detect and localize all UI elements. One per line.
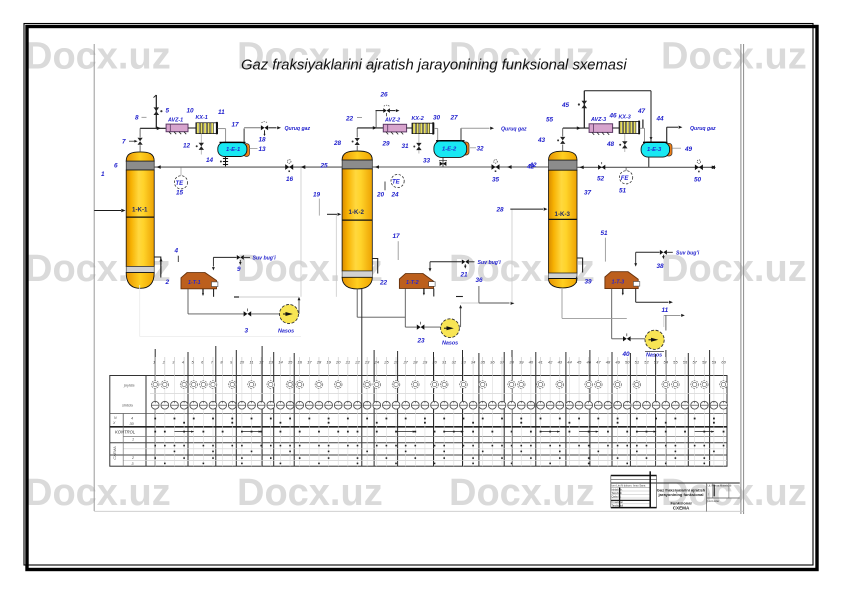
svg-text:42: 42 bbox=[548, 360, 553, 365]
svg-text:32: 32 bbox=[452, 360, 457, 365]
svg-text:51: 51 bbox=[601, 230, 609, 237]
svg-text:X: X bbox=[112, 421, 116, 425]
svg-text:6: 6 bbox=[114, 163, 118, 170]
svg-text:15: 15 bbox=[288, 360, 293, 365]
svg-text:16: 16 bbox=[297, 360, 302, 365]
svg-text:Qabul q.: Qabul q. bbox=[612, 495, 622, 499]
svg-text:TE: TE bbox=[176, 181, 185, 187]
svg-text:35: 35 bbox=[492, 177, 500, 184]
svg-text:50: 50 bbox=[694, 177, 702, 184]
svg-text:38: 38 bbox=[657, 263, 665, 270]
svg-text:55: 55 bbox=[546, 117, 554, 124]
svg-text:54: 54 bbox=[664, 360, 669, 365]
svg-text:52: 52 bbox=[644, 360, 649, 365]
svg-text:38: 38 bbox=[509, 360, 514, 365]
svg-text:28: 28 bbox=[496, 207, 505, 214]
svg-text:40: 40 bbox=[622, 351, 631, 358]
svg-text:2: 2 bbox=[131, 456, 134, 460]
svg-text:Docx.uz: Docx.uz bbox=[25, 472, 171, 514]
svg-text:59: 59 bbox=[712, 360, 717, 365]
svg-text:KX-1: KX-1 bbox=[196, 115, 208, 121]
svg-text:Quruq gaz: Quruq gaz bbox=[501, 127, 527, 133]
svg-text:AVZ-3: AVZ-3 bbox=[590, 117, 606, 123]
svg-text:17: 17 bbox=[307, 360, 312, 365]
svg-text:14: 14 bbox=[206, 157, 214, 164]
svg-text:52: 52 bbox=[597, 176, 605, 183]
svg-text:36: 36 bbox=[490, 360, 495, 365]
svg-text:1: 1 bbox=[101, 171, 105, 178]
svg-text:17: 17 bbox=[232, 122, 240, 129]
svg-text:21: 21 bbox=[345, 360, 350, 365]
svg-text:53: 53 bbox=[654, 360, 659, 365]
svg-text:26: 26 bbox=[380, 92, 389, 99]
svg-text:43: 43 bbox=[537, 137, 546, 144]
svg-text:1-K-1: 1-K-1 bbox=[132, 207, 148, 214]
svg-text:Nasos: Nasos bbox=[646, 353, 662, 359]
svg-text:Nasos: Nasos bbox=[278, 329, 294, 335]
svg-text:60: 60 bbox=[721, 360, 726, 365]
svg-text:3: 3 bbox=[245, 328, 249, 335]
svg-text:AVZ-2: AVZ-2 bbox=[384, 117, 400, 123]
svg-text:46: 46 bbox=[586, 360, 591, 365]
svg-text:List Listlar: List Listlar bbox=[708, 499, 720, 503]
svg-text:Izm List N dokum. Imzo San: Izm List N dokum. Imzo Sana bbox=[612, 484, 646, 488]
svg-text:32: 32 bbox=[477, 146, 485, 153]
svg-text:1-T-2: 1-T-2 bbox=[406, 280, 419, 286]
svg-text:47: 47 bbox=[637, 108, 646, 115]
svg-text:47: 47 bbox=[596, 360, 601, 365]
svg-text:56: 56 bbox=[683, 360, 688, 365]
svg-text:44: 44 bbox=[656, 116, 665, 123]
svg-text:2: 2 bbox=[165, 279, 170, 286]
svg-text:27: 27 bbox=[450, 115, 459, 122]
svg-text:1-T-3: 1-T-3 bbox=[612, 280, 625, 286]
svg-text:24: 24 bbox=[391, 192, 400, 199]
svg-text:Docx.uz: Docx.uz bbox=[661, 36, 807, 78]
svg-text:1: 1 bbox=[153, 360, 155, 365]
svg-text:31: 31 bbox=[402, 143, 410, 150]
svg-text:13: 13 bbox=[259, 146, 267, 153]
svg-text:11: 11 bbox=[218, 109, 225, 116]
svg-text:Tasdiqladi: Tasdiqladi bbox=[612, 504, 624, 508]
svg-text:19: 19 bbox=[326, 360, 331, 365]
svg-text:48: 48 bbox=[606, 141, 615, 148]
svg-text:13: 13 bbox=[269, 360, 274, 365]
svg-text:N: N bbox=[114, 416, 117, 420]
svg-text:29: 29 bbox=[382, 141, 391, 148]
svg-text:18: 18 bbox=[259, 137, 267, 144]
svg-text:39: 39 bbox=[585, 279, 593, 286]
svg-text:49: 49 bbox=[615, 360, 620, 365]
svg-text:30: 30 bbox=[432, 360, 437, 365]
svg-text:FE: FE bbox=[621, 176, 630, 182]
svg-text:28: 28 bbox=[333, 140, 342, 147]
svg-text:30: 30 bbox=[433, 115, 441, 122]
svg-text:Quruq gaz: Quruq gaz bbox=[690, 126, 716, 132]
svg-text:CXEMA: CXEMA bbox=[113, 446, 117, 460]
svg-text:51: 51 bbox=[619, 188, 627, 195]
svg-text:Suv bug'i: Suv bug'i bbox=[253, 256, 277, 262]
svg-text:Nasos: Nasos bbox=[442, 341, 458, 347]
svg-text:11: 11 bbox=[662, 307, 669, 314]
svg-text:4: 4 bbox=[174, 248, 179, 255]
svg-text:58: 58 bbox=[702, 360, 707, 365]
svg-text:37: 37 bbox=[500, 360, 505, 365]
svg-text:48: 48 bbox=[606, 360, 611, 365]
svg-text:22: 22 bbox=[345, 116, 354, 123]
svg-text:43: 43 bbox=[558, 360, 563, 365]
svg-text:jarayonining funksional: jarayonining funksional bbox=[658, 492, 704, 497]
svg-text:4: 4 bbox=[131, 417, 133, 421]
svg-text:1-E-2: 1-E-2 bbox=[442, 147, 457, 153]
svg-text:10: 10 bbox=[187, 108, 195, 115]
svg-text:23: 23 bbox=[417, 338, 426, 345]
svg-text:1-K-2: 1-K-2 bbox=[349, 209, 365, 216]
svg-text:AVZ-1: AVZ-1 bbox=[167, 118, 183, 124]
svg-text:Suv bug'i: Suv bug'i bbox=[478, 260, 502, 266]
svg-text:CXEMA: CXEMA bbox=[673, 506, 690, 511]
svg-text:45: 45 bbox=[561, 102, 570, 109]
svg-text:joyida: joyida bbox=[123, 383, 135, 388]
svg-text:33: 33 bbox=[461, 360, 466, 365]
svg-text:9: 9 bbox=[237, 266, 241, 273]
svg-text:33: 33 bbox=[423, 158, 431, 165]
svg-text:18: 18 bbox=[317, 360, 322, 365]
svg-text:25: 25 bbox=[320, 163, 329, 170]
svg-text:42: 42 bbox=[529, 162, 538, 169]
svg-text:12: 12 bbox=[259, 360, 264, 365]
svg-text:35: 35 bbox=[481, 360, 486, 365]
svg-text:37: 37 bbox=[584, 190, 592, 197]
svg-text:12: 12 bbox=[183, 143, 191, 150]
svg-text:Docx.uz: Docx.uz bbox=[237, 472, 383, 514]
svg-text:36: 36 bbox=[476, 277, 484, 284]
svg-text:21: 21 bbox=[460, 272, 469, 279]
svg-text:shitda: shitda bbox=[122, 403, 133, 408]
svg-text:Tekshirdi: Tekshirdi bbox=[612, 491, 623, 495]
svg-text:KONTROL: KONTROL bbox=[115, 430, 136, 435]
svg-text:55: 55 bbox=[673, 360, 678, 365]
svg-text:TE: TE bbox=[392, 180, 401, 186]
svg-text:Suv bug'i: Suv bug'i bbox=[676, 251, 700, 257]
svg-text:Gaz fraksiyaklarini ajratish j: Gaz fraksiyaklarini ajratish jarayoninin… bbox=[241, 58, 627, 74]
svg-text:15: 15 bbox=[176, 190, 184, 197]
svg-text:1: 1 bbox=[132, 438, 134, 442]
svg-text:46: 46 bbox=[609, 113, 618, 120]
svg-text:5: 5 bbox=[166, 108, 170, 115]
svg-text:49: 49 bbox=[684, 146, 693, 153]
svg-text:20: 20 bbox=[376, 192, 385, 199]
svg-text:KX-2: KX-2 bbox=[412, 116, 424, 122]
svg-text:50: 50 bbox=[625, 360, 630, 365]
svg-text:19: 19 bbox=[313, 192, 321, 199]
svg-text:39: 39 bbox=[519, 360, 524, 365]
svg-text:40: 40 bbox=[529, 360, 534, 365]
svg-text:1-K-3: 1-K-3 bbox=[555, 211, 571, 218]
svg-text:Lit. Massa Masshtab: Lit. Massa Masshtab bbox=[708, 484, 732, 488]
svg-text:22: 22 bbox=[379, 280, 388, 287]
svg-text:34: 34 bbox=[471, 360, 476, 365]
svg-text:17: 17 bbox=[393, 233, 401, 240]
svg-text:45: 45 bbox=[577, 360, 582, 365]
svg-text:57: 57 bbox=[692, 360, 697, 365]
svg-text:16: 16 bbox=[286, 176, 294, 183]
svg-text:10: 10 bbox=[240, 360, 245, 365]
svg-text:Docx.uz: Docx.uz bbox=[25, 36, 171, 78]
svg-text:1-T-1: 1-T-1 bbox=[188, 280, 201, 286]
svg-text:1-E-1: 1-E-1 bbox=[226, 147, 240, 153]
svg-text:N.nazorat: N.nazorat bbox=[612, 500, 624, 504]
svg-text:Quruq gaz: Quruq gaz bbox=[285, 126, 311, 132]
svg-text:14: 14 bbox=[278, 360, 283, 365]
svg-text:Docx.uz: Docx.uz bbox=[449, 472, 595, 514]
svg-text:8: 8 bbox=[135, 115, 139, 122]
svg-text:Ishlab ch.: Ishlab ch. bbox=[612, 488, 623, 492]
svg-text:1-E-3: 1-E-3 bbox=[647, 147, 662, 153]
svg-text:KX-3: KX-3 bbox=[619, 115, 631, 121]
svg-text:7: 7 bbox=[122, 139, 126, 146]
svg-text:44: 44 bbox=[567, 360, 572, 365]
svg-text:3: 3 bbox=[132, 462, 134, 466]
